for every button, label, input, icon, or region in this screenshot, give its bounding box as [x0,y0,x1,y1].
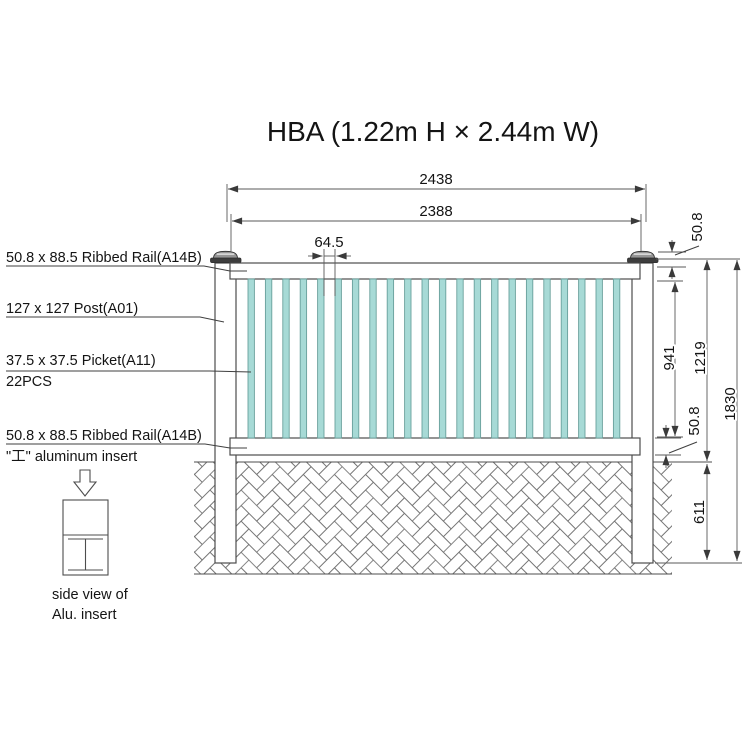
dim-buried-depth: 611 [691,500,708,524]
fence-technical-drawing: HBA (1.22m H × 2.44m W) [0,0,750,750]
picket [422,279,428,438]
right-post [632,263,653,563]
picket [370,279,376,438]
picket [387,279,393,438]
dim-top-rail-height: 50.8 [689,212,706,241]
picket [613,279,619,438]
label-picket: 37.5 x 37.5 Picket(A11) [6,353,156,369]
picket [405,279,411,438]
dim-overall-width: 2438 [419,171,452,188]
picket [300,279,306,438]
label-bottom-rail: 50.8 x 88.5 Ribbed Rail(A14B) [6,428,202,444]
picket [248,279,254,438]
label-top-rail: 50.8 x 88.5 Ribbed Rail(A14B) [6,250,202,266]
picket [492,279,498,438]
dim-rail-width: 2388 [419,203,452,220]
label-picket-quantity: 22PCS [6,374,52,390]
ground-hatch [194,462,672,574]
picket [579,279,585,438]
picket [457,279,463,438]
label-post: 127 x 127 Post(A01) [6,301,138,317]
dim-bottom-rail-height: 50.8 [686,406,703,435]
top-rail [230,263,640,279]
dim-picket-spacing: 64.5 [314,234,343,251]
ground [194,462,742,574]
picket [509,279,515,438]
picket [474,279,480,438]
picket [265,279,271,438]
picket [352,279,358,438]
picket [318,279,324,438]
left-post [215,263,236,563]
picket [561,279,567,438]
label-aluminum-insert: "工" aluminum insert [6,449,137,465]
dim-overall-height: 1830 [722,387,739,420]
picket [335,279,341,438]
side-view-caption-line2: Alu. insert [52,607,116,623]
fence-drawing-page: HBA (1.22m H × 2.44m W) [0,0,750,750]
picket [283,279,289,438]
picket [439,279,445,438]
picket [596,279,602,438]
drawing-title: HBA (1.22m H × 2.44m W) [267,116,599,147]
side-view-caption-line1: side view of [52,587,129,603]
picket [544,279,550,438]
bottom-rail [230,438,640,455]
picket [526,279,532,438]
dim-panel-height: 1219 [692,341,709,374]
dim-picket-opening-height: 941 [661,345,678,370]
